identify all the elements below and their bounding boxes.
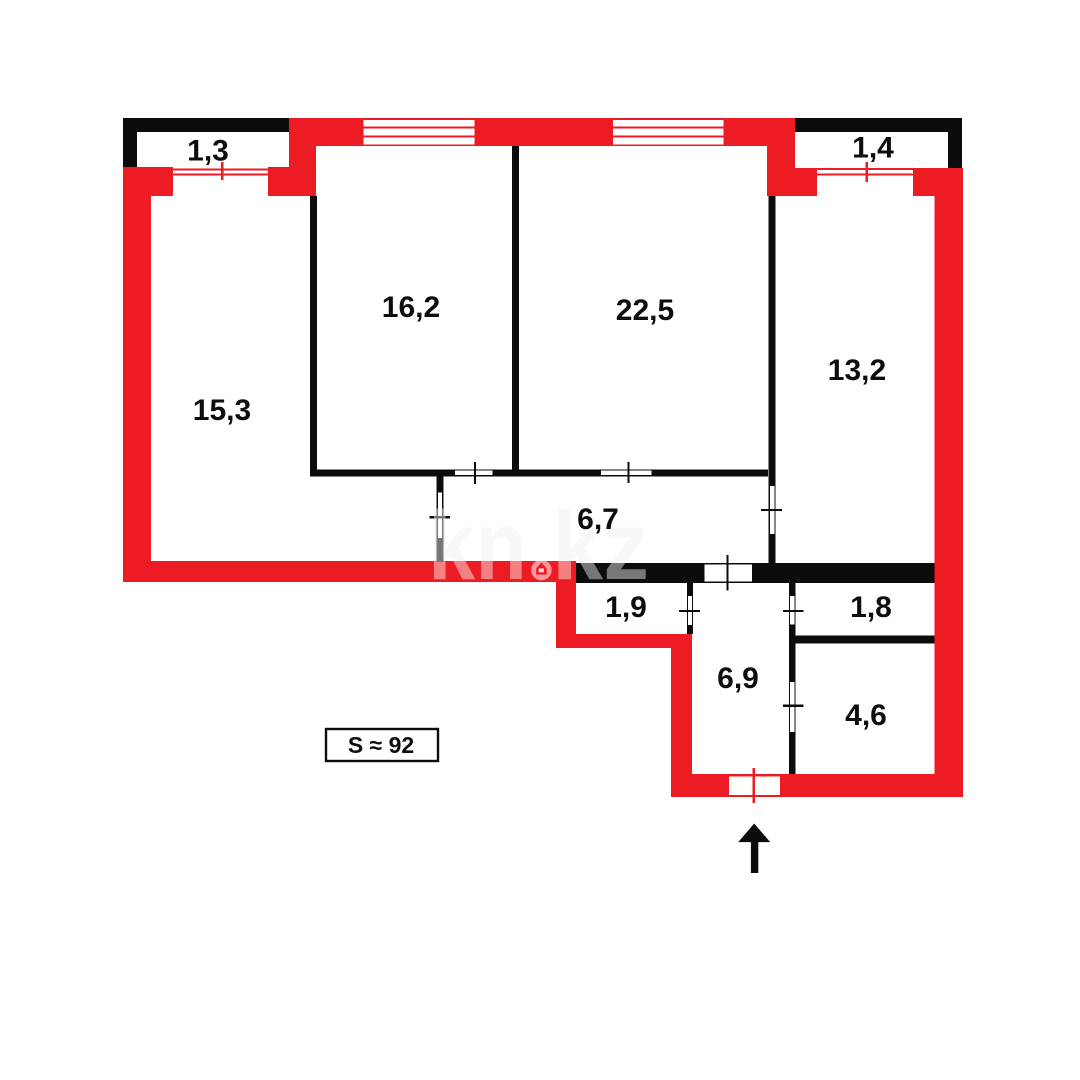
svg-text:16,2: 16,2 <box>382 291 440 324</box>
svg-text:1,3: 1,3 <box>187 135 229 168</box>
svg-text:13,2: 13,2 <box>828 354 886 387</box>
svg-text:6,9: 6,9 <box>717 662 759 695</box>
svg-text:4,6: 4,6 <box>845 699 887 732</box>
svg-text:15,3: 15,3 <box>193 394 251 427</box>
svg-text:1,9: 1,9 <box>605 591 647 624</box>
svg-text:22,5: 22,5 <box>616 294 674 327</box>
svg-text:1,4: 1,4 <box>852 132 894 165</box>
svg-text:1,8: 1,8 <box>850 591 892 624</box>
svg-text:kn: kn <box>428 491 527 600</box>
svg-text:S ≈ 92: S ≈ 92 <box>348 732 414 758</box>
svg-text:6,7: 6,7 <box>577 503 619 536</box>
